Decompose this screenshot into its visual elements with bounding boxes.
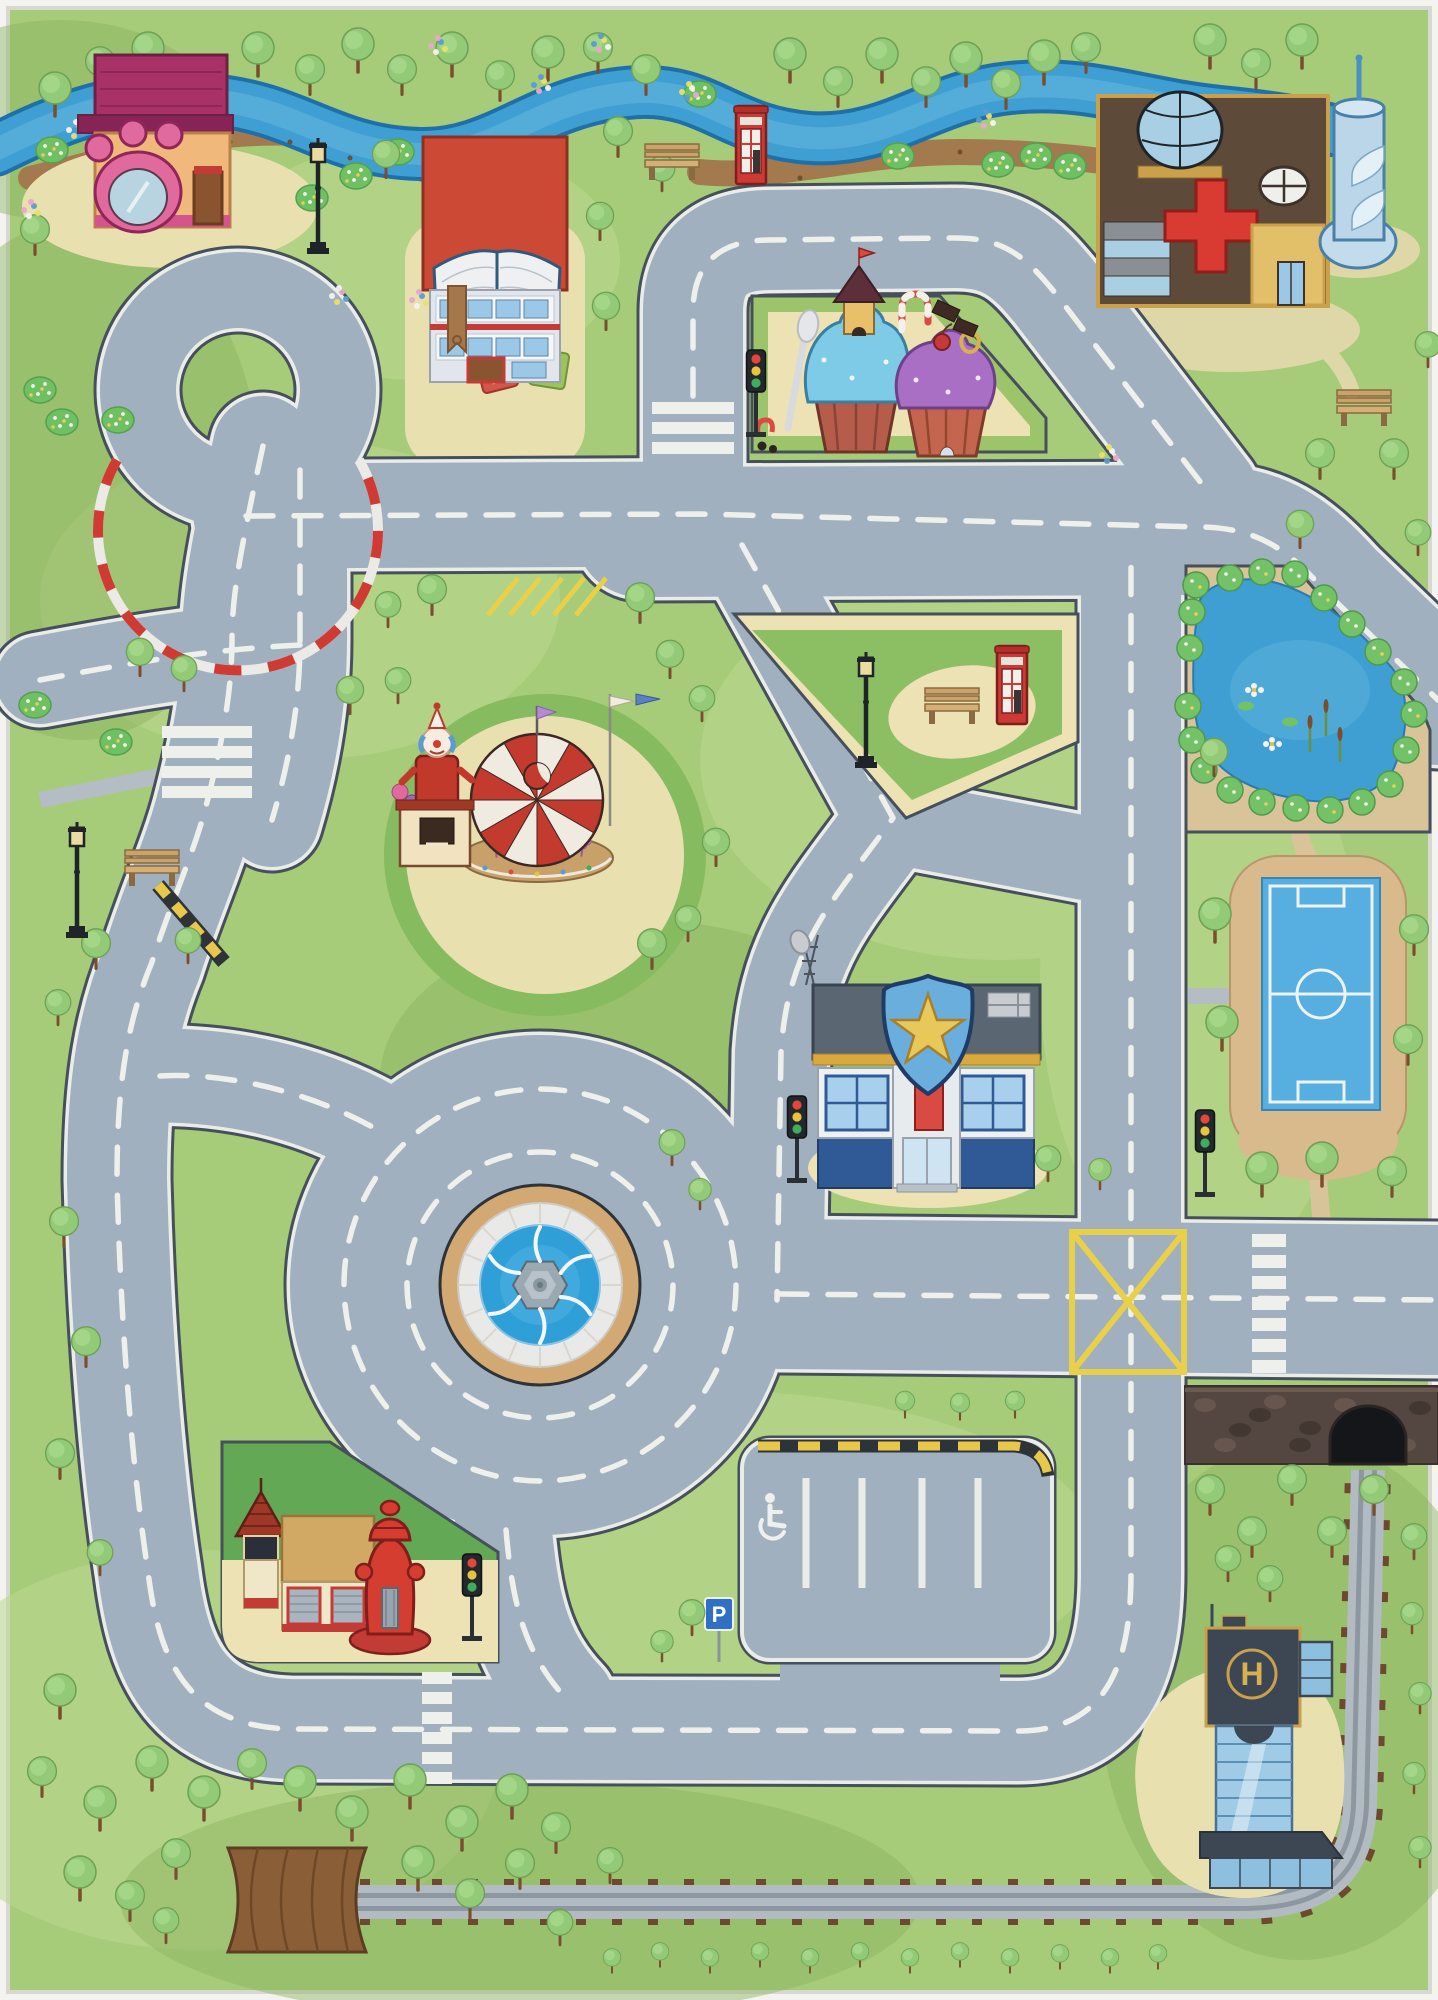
pond-shrub xyxy=(1283,795,1309,821)
play-mat-photo: P xyxy=(0,0,1438,2000)
pond-shrub xyxy=(1175,693,1201,719)
flower-bush xyxy=(19,692,51,718)
pond-shrub xyxy=(1249,559,1275,585)
pond-shrub xyxy=(1177,635,1203,661)
stone-embankment xyxy=(1185,1386,1438,1464)
play-mat-scene: P xyxy=(0,0,1438,2000)
bookmark-ribbon xyxy=(448,286,466,352)
flower-bush xyxy=(1020,143,1052,169)
pond-shrub xyxy=(1377,771,1403,797)
flower-bush xyxy=(102,407,134,433)
parking-lot: P xyxy=(705,1440,1052,1692)
pond-shrub xyxy=(1391,669,1417,695)
pond-shrub xyxy=(1317,797,1343,823)
soccer-field xyxy=(1230,856,1406,1180)
pond-shrub xyxy=(1365,639,1391,665)
glass-tower xyxy=(1216,1726,1292,1836)
rooftop-vent xyxy=(1260,167,1308,205)
phone-box xyxy=(734,106,768,184)
flower-bush xyxy=(46,409,78,435)
parking-sign-letter: P xyxy=(712,1602,727,1627)
pond-shrub xyxy=(1179,599,1205,625)
flower-bush xyxy=(100,729,132,755)
pond-shrub xyxy=(1401,701,1427,727)
phone-box xyxy=(995,646,1029,724)
hospital-window-band-left xyxy=(1104,222,1170,296)
pond-shrub xyxy=(1282,561,1308,587)
pond-shrub xyxy=(1349,789,1375,815)
flower-bush xyxy=(882,143,914,169)
fountain-roundabout-island xyxy=(440,1185,640,1385)
pet-shop xyxy=(78,55,233,232)
pond-shrub xyxy=(1183,572,1209,598)
pond-shrub xyxy=(1249,789,1275,815)
flower-bush xyxy=(296,185,328,211)
flower-bush xyxy=(982,151,1014,177)
railway-tunnel-arch xyxy=(1330,1406,1406,1464)
flower-bush xyxy=(1054,153,1086,179)
pond-shrub xyxy=(1393,737,1419,763)
pond-shrub xyxy=(1339,611,1365,637)
flower-bush xyxy=(36,137,68,163)
hospital xyxy=(1098,92,1328,306)
helipad-letter: H xyxy=(1240,1656,1263,1692)
pond-shrub xyxy=(1217,777,1243,803)
flower-bush xyxy=(24,377,56,403)
pond-shrub xyxy=(1217,565,1243,591)
pond-shrub xyxy=(1311,585,1337,611)
flower-bush xyxy=(340,163,372,189)
zebra-crossing-top xyxy=(652,402,734,454)
wooden-bridge xyxy=(228,1848,366,1952)
library-book-building: a c b d xyxy=(423,137,570,394)
